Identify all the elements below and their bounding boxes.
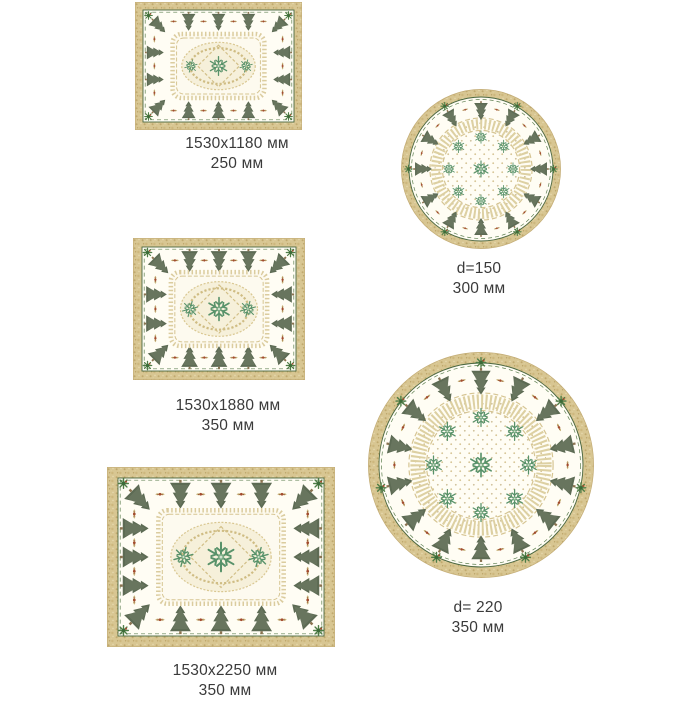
- tablecloth-image: [368, 352, 594, 578]
- secondary-size-label: 350 мм: [378, 618, 578, 638]
- tablecloth-image: [135, 2, 302, 130]
- tablecloth-image: [133, 238, 305, 380]
- catalog-stage: 1530x1180 мм 250 мм d=150 300 мм 1530x18…: [0, 0, 700, 700]
- secondary-size-label: 350 мм: [128, 416, 328, 436]
- secondary-size-label: 350 мм: [125, 681, 325, 701]
- tablecloth-round-large: d= 220 350 мм: [368, 352, 594, 578]
- tablecloth-round-small: d=150 300 мм: [401, 89, 561, 249]
- size-caption: d=150 300 мм: [379, 259, 579, 300]
- dimensions-label: d= 220: [378, 598, 578, 618]
- tablecloth-image: [401, 89, 561, 249]
- tablecloth-image: [107, 467, 335, 647]
- dimensions-label: 1530x1880 мм: [128, 396, 328, 416]
- size-caption: d= 220 350 мм: [378, 598, 578, 639]
- tablecloth-rect-large: 1530x2250 мм 350 мм: [107, 467, 335, 647]
- dimensions-label: 1530x2250 мм: [125, 661, 325, 681]
- size-caption: 1530x1880 мм 350 мм: [128, 396, 328, 437]
- secondary-size-label: 300 мм: [379, 279, 579, 299]
- secondary-size-label: 250 мм: [137, 154, 337, 174]
- size-caption: 1530x1180 мм 250 мм: [137, 134, 337, 175]
- dimensions-label: d=150: [379, 259, 579, 279]
- tablecloth-rect-small: 1530x1180 мм 250 мм: [135, 2, 302, 130]
- size-caption: 1530x2250 мм 350 мм: [125, 661, 325, 702]
- tablecloth-rect-medium: 1530x1880 мм 350 мм: [133, 238, 305, 380]
- dimensions-label: 1530x1180 мм: [137, 134, 337, 154]
